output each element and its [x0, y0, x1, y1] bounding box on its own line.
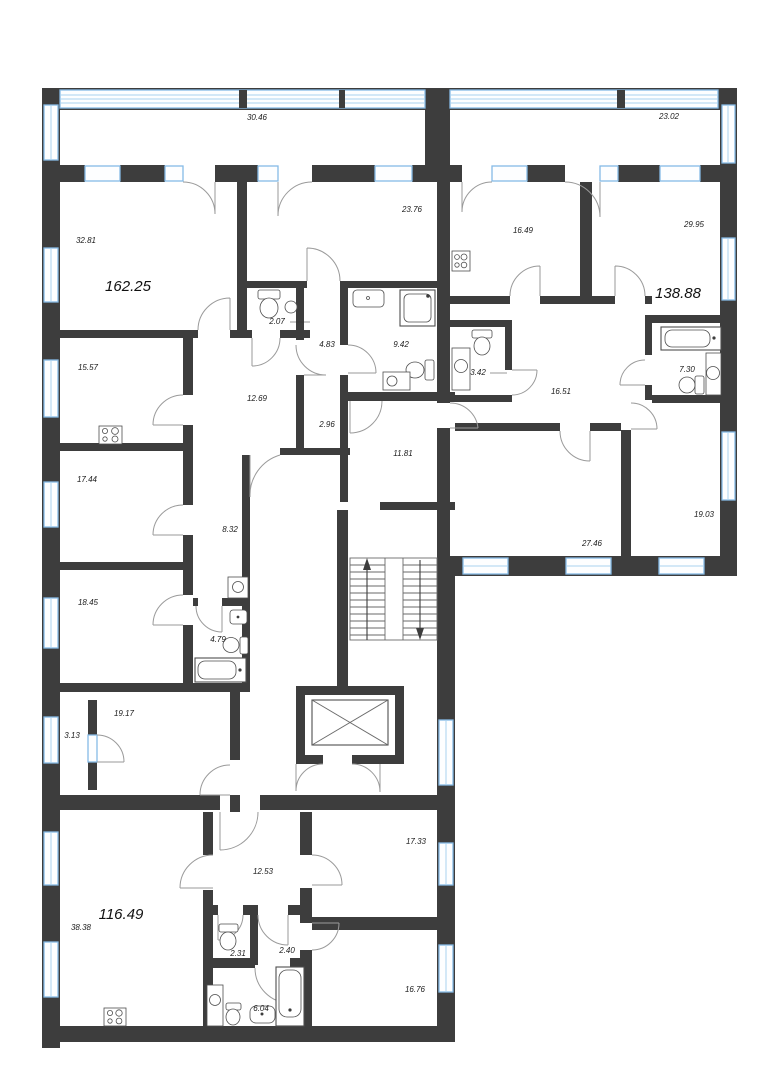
room-label-balcony-top-left: 30.46 [247, 113, 268, 122]
sink-icon [230, 610, 247, 624]
apartment-label-apt-116: 116.49 [99, 906, 144, 923]
shower-icon [400, 290, 435, 326]
room-label-room-29-95: 29.95 [683, 220, 705, 229]
room-label-hall-12-53: 12.53 [253, 867, 274, 876]
sink-icon [285, 301, 297, 313]
room-label-room-17-33: 17.33 [406, 837, 427, 846]
interior-walls-left [42, 182, 455, 812]
room-label-corridor-11-81: 11.81 [393, 449, 412, 458]
room-label-room-17-44: 17.44 [77, 475, 98, 484]
toilet-icon [219, 924, 238, 950]
washing-machine-icon [207, 985, 223, 1026]
washing-machine-icon [383, 372, 410, 390]
room-label-bath-9-42: 9.42 [393, 340, 409, 349]
floor-plan-drawing: 30.4623.0232.8123.7616.4929.9515.572.074… [0, 0, 777, 1079]
staircase [350, 558, 437, 640]
sink-icon [452, 348, 470, 390]
room-label-bath-4-79: 4.79 [210, 635, 226, 644]
room-label-wc-2-31: 2.31 [229, 949, 246, 958]
room-label-room-18-45: 18.45 [78, 598, 99, 607]
room-label-corridor-4-83: 4.83 [319, 340, 335, 349]
sink-icon [706, 353, 721, 395]
elevator [312, 700, 388, 745]
stove-icon [104, 1008, 126, 1026]
apartment-label-apt-138: 138.88 [655, 285, 702, 302]
room-label-room-19-17: 19.17 [114, 709, 135, 718]
room-label-corridor-2-40: 2.40 [278, 946, 295, 955]
toilet-icon [226, 1003, 241, 1025]
washing-machine-icon [228, 577, 248, 598]
sink-icon [353, 290, 384, 307]
room-label-room-16-49: 16.49 [513, 226, 534, 235]
room-label-hall-16-51: 16.51 [551, 387, 571, 396]
room-label-room-19-03: 19.03 [694, 510, 715, 519]
floor-plan-page: 30.4623.0232.8123.7616.4929.9515.572.074… [0, 0, 777, 1079]
room-label-hall-12-69: 12.69 [247, 394, 268, 403]
room-label-room-15-57: 15.57 [78, 363, 99, 372]
windows [44, 90, 735, 997]
room-label-bath-6-04: 6.04 [253, 1004, 269, 1013]
room-label-room-23-76: 23.76 [401, 205, 423, 214]
toilet-icon [472, 330, 492, 355]
room-label-room-16-76: 16.76 [405, 985, 426, 994]
room-label-room-38-38: 38.38 [71, 923, 92, 932]
room-label-balcony-top-right: 23.02 [658, 112, 680, 121]
bathtub-icon [661, 327, 721, 350]
stove-icon [452, 251, 470, 271]
room-label-room-32-81: 32.81 [76, 236, 96, 245]
room-label-corridor-8-32: 8.32 [222, 525, 238, 534]
apartment-label-apt-162: 162.25 [105, 278, 152, 295]
toilet-icon [679, 376, 704, 394]
room-label-bath-7-30: 7.30 [679, 365, 695, 374]
room-label-balcony-3-13: 3.13 [64, 731, 80, 740]
toilet-icon [223, 637, 248, 654]
stove-icon [99, 426, 122, 444]
interior-walls-bottom [203, 812, 437, 1028]
room-label-room-27-46: 27.46 [581, 539, 603, 548]
room-label-wc-3-42: 3.42 [470, 368, 486, 377]
room-label-wc-2-07: 2.07 [268, 317, 285, 326]
bathtub-icon [195, 658, 246, 682]
bathtub-icon [276, 967, 304, 1026]
toilet-icon [258, 290, 280, 318]
room-label-corridor-2-96: 2.96 [318, 420, 335, 429]
